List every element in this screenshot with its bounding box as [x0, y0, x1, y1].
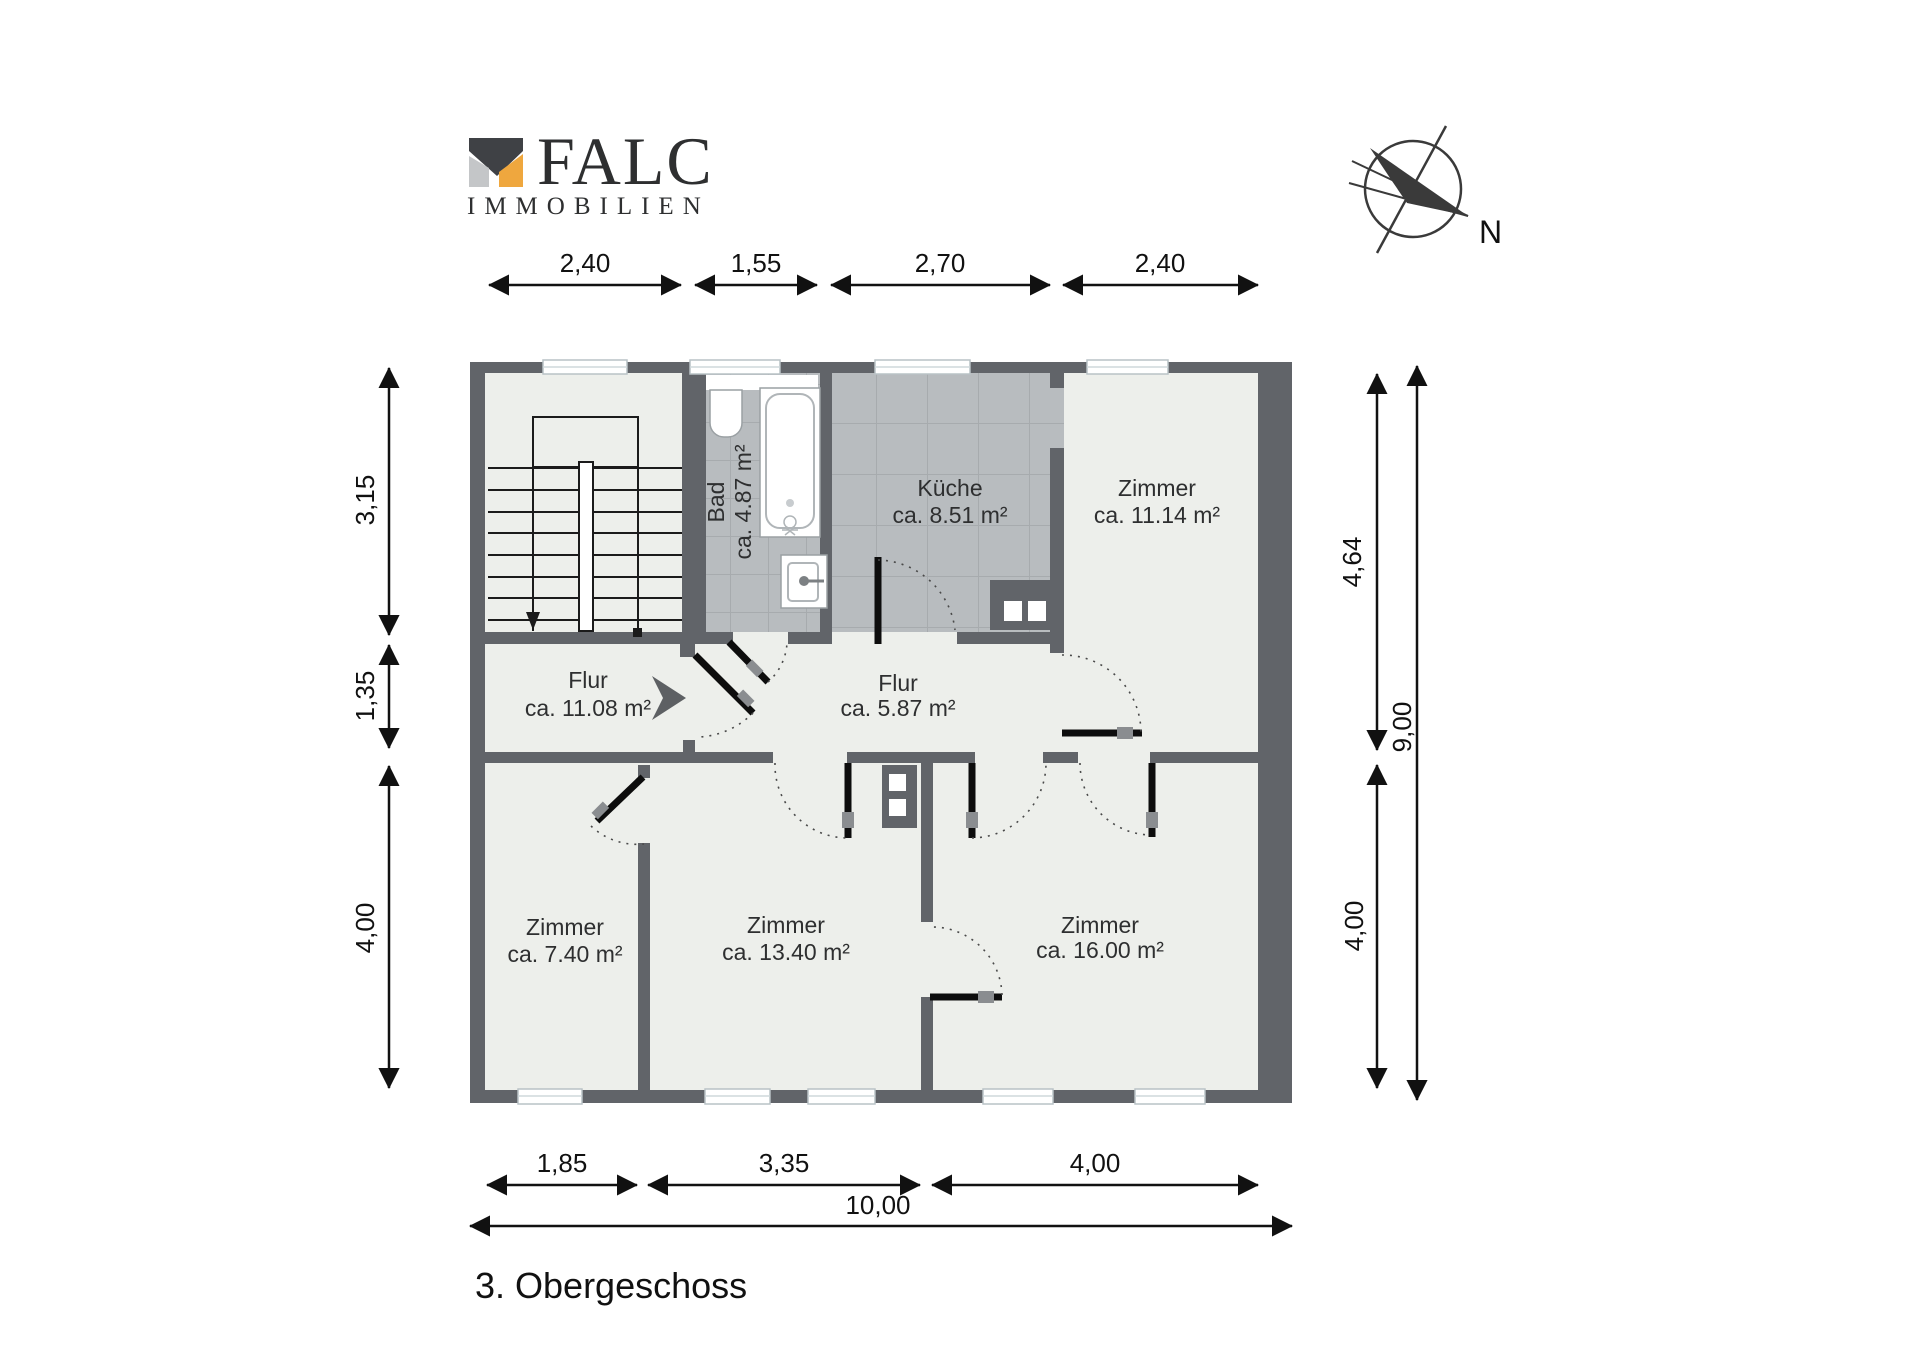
dim-left-1: 3,15 — [350, 475, 380, 526]
room-label-flur1: Flur — [568, 667, 608, 693]
room-area-zimmer2: ca. 7.40 m² — [507, 941, 622, 967]
stair-start-marker — [633, 628, 642, 637]
dim-bottom-1: 1,85 — [537, 1148, 588, 1178]
room-label-zimmer3: Zimmer — [747, 912, 825, 938]
dim-left-2: 1,35 — [350, 671, 380, 722]
room-area-zimmer3: ca. 13.40 m² — [722, 939, 850, 965]
dim-top-4: 2,40 — [1135, 248, 1186, 278]
window — [690, 360, 780, 374]
dim-right-2: 4,00 — [1339, 901, 1369, 952]
room-label-zimmer2: Zimmer — [526, 914, 604, 940]
shaft — [882, 765, 917, 828]
dim-right-1: 4,64 — [1337, 537, 1367, 588]
wall-b4 — [1150, 752, 1263, 763]
window — [518, 1089, 582, 1104]
dim-top-2: 1,55 — [731, 248, 782, 278]
north-label: N — [1479, 214, 1502, 250]
dim-top-3: 2,70 — [915, 248, 966, 278]
window — [1087, 360, 1168, 374]
washbasin-icon — [781, 555, 827, 608]
dim-bottom-total: 10,00 — [845, 1190, 910, 1220]
dim-top-1: 2,40 — [560, 248, 611, 278]
wall-right — [1258, 362, 1292, 1103]
stove-icon — [990, 580, 1052, 630]
window — [875, 360, 970, 374]
room-area-zimmer1: ca. 11.14 m² — [1094, 502, 1220, 528]
floorplan: Küche ca. 8.51 m² Zimmer ca. 11.14 m² Fl… — [470, 360, 1292, 1104]
dim-bottom-2: 3,35 — [759, 1148, 810, 1178]
toilet-icon — [710, 390, 742, 437]
room-area-zimmer4: ca. 16.00 m² — [1036, 937, 1164, 963]
wall-left — [470, 362, 485, 1103]
window — [983, 1089, 1053, 1104]
wall-a1-stub — [680, 644, 695, 657]
dim-right-3: 9,00 — [1387, 702, 1417, 753]
wall-b2 — [847, 752, 975, 763]
falc-logo-icon — [469, 138, 523, 187]
room-label-zimmer4: Zimmer — [1061, 912, 1139, 938]
room-area-bad: ca. 4.87 m² — [730, 444, 756, 559]
room-label-bad: Bad — [703, 482, 729, 523]
window — [808, 1089, 875, 1104]
wall-z2-z3 — [638, 843, 650, 1090]
wall-z3-z4-lower — [921, 997, 933, 1090]
room-label-zimmer1: Zimmer — [1118, 475, 1196, 501]
dim-left-3: 4,00 — [350, 903, 380, 954]
room-label-flur2: Flur — [878, 670, 918, 696]
dim-bottom-3: 4,00 — [1070, 1148, 1121, 1178]
wall-b3-stub — [1043, 752, 1078, 763]
wall-kitchen-z1 — [1050, 448, 1064, 653]
window — [705, 1089, 770, 1104]
room-area-flur2: ca. 5.87 m² — [840, 695, 955, 721]
kitchen-passage-tiles — [1050, 388, 1064, 448]
floorplan-canvas: FALC IMMOBILIEN N — [0, 0, 1920, 1357]
wall-a1 — [470, 632, 733, 644]
window — [1135, 1089, 1205, 1104]
wall-z3-z4-upper — [921, 763, 933, 922]
compass-rose-icon: N — [1349, 126, 1502, 253]
page-title: 3. Obergeschoss — [475, 1265, 747, 1306]
wall-b1 — [470, 752, 773, 763]
room-label-kueche: Küche — [917, 475, 982, 501]
wall-a3 — [957, 632, 1050, 644]
brand-text: FALC — [537, 123, 714, 199]
floorplan-page: FALC IMMOBILIEN N — [0, 0, 1920, 1357]
window — [543, 360, 627, 374]
brand-subtitle: IMMOBILIEN — [467, 193, 710, 220]
wall-b1-stub-up — [683, 740, 695, 752]
room-area-kueche: ca. 8.51 m² — [892, 502, 1007, 528]
room-area-flur1: ca. 11.08 m² — [525, 695, 651, 721]
falc-logo: FALC IMMOBILIEN — [467, 123, 714, 220]
bathtub-icon — [760, 388, 820, 537]
wall-kitchen-z1-top — [1050, 362, 1064, 388]
